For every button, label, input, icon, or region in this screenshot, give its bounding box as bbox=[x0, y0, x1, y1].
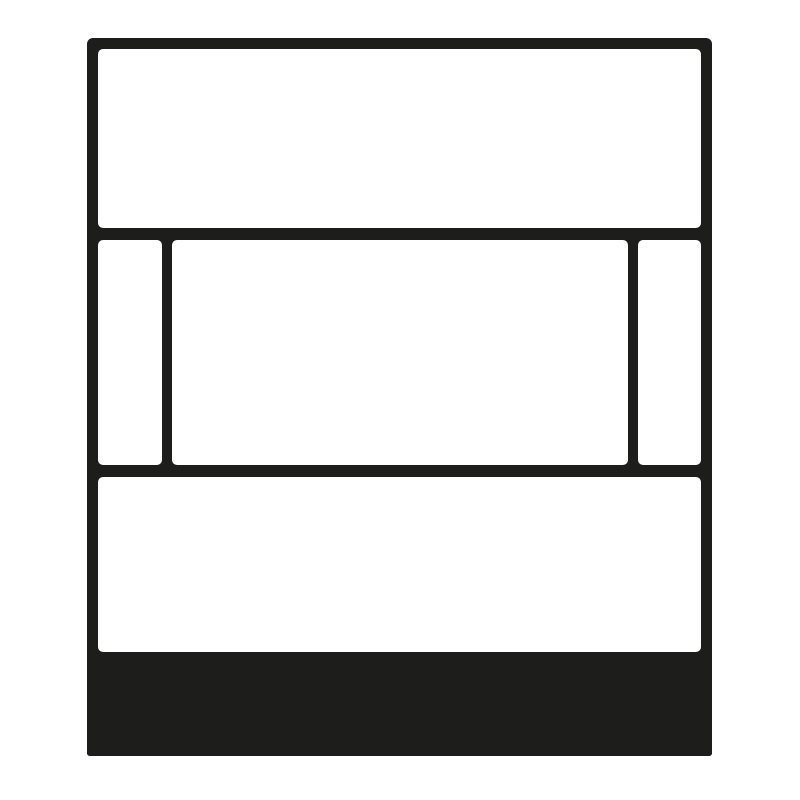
plate-left-side-panel bbox=[98, 240, 162, 465]
plate-frame-illustration bbox=[87, 38, 712, 756]
plate-base-black-band bbox=[87, 652, 712, 756]
plate-center-panel bbox=[172, 240, 628, 465]
canvas-background bbox=[0, 0, 800, 800]
plate-top-panel bbox=[98, 49, 701, 228]
plate-right-side-panel bbox=[638, 240, 701, 465]
plate-bottom-panel bbox=[98, 477, 701, 652]
